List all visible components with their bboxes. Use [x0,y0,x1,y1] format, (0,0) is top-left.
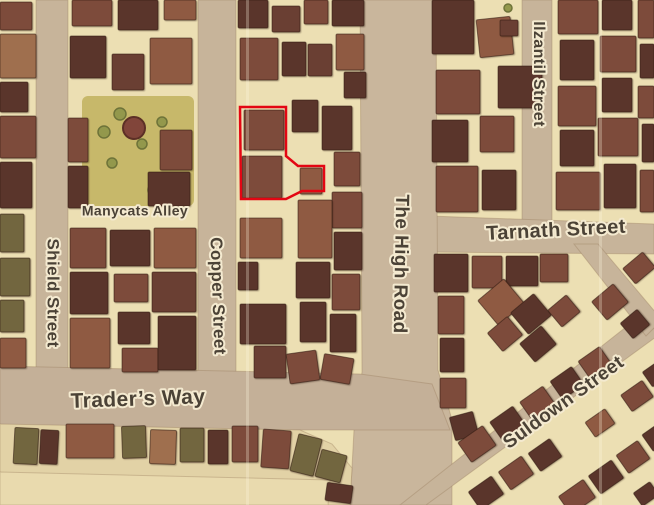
paper-crease [599,0,602,505]
building [320,354,354,385]
street-label-ilzantil-street: Ilzantil Street [530,21,547,127]
building [122,348,158,372]
building [436,70,480,114]
building [602,78,632,112]
building [70,36,106,78]
building [633,482,654,505]
building [68,118,88,162]
building [286,350,320,384]
building [0,2,32,30]
building [336,34,364,70]
street-label-shield-street: Shield Street [44,238,63,347]
building [254,346,286,378]
building [520,326,557,362]
building [334,152,360,186]
fantasy-city-map: Manycats AlleyShield StreetCopper Street… [0,0,654,505]
building [332,274,360,310]
building [0,338,26,368]
building [436,166,478,212]
building [472,256,502,288]
city-map-canvas: Manycats AlleyShield StreetCopper Street… [0,0,654,505]
building [244,110,284,150]
building [240,38,278,80]
market-stall [39,430,59,465]
building [558,479,595,505]
building [498,456,534,490]
park-bush [114,108,126,120]
street-label-traders-way: Trader’s Way [70,385,205,413]
building [344,72,366,98]
building [0,258,30,296]
building [292,100,318,132]
building [154,228,196,268]
building [330,314,356,352]
building [70,228,106,268]
building [72,0,112,26]
building [110,230,150,266]
building [70,272,108,314]
building [556,172,600,210]
building [0,214,24,252]
building [325,482,353,503]
park-bush [157,117,167,127]
building [322,106,352,150]
building [558,0,598,34]
park-bush [504,4,512,12]
building [438,296,464,334]
building [604,164,636,208]
market-stall [208,430,228,464]
building [272,6,300,32]
building [0,34,36,78]
building [558,86,596,126]
paper-crease [246,0,249,505]
building [642,124,654,162]
street-label-suldown-street: Suldown Street [499,352,628,454]
building [112,54,144,90]
building [150,38,192,84]
park-bush [137,139,147,149]
building [482,170,516,210]
building [642,425,654,452]
building [0,116,36,158]
building [480,116,514,152]
building [296,262,330,298]
street-copper-street [198,0,236,428]
building [560,130,594,166]
building [160,130,192,170]
building [148,172,190,206]
building [616,441,650,474]
building [602,0,632,30]
building [298,200,332,258]
street-label-manycats-alley: Manycats Alley [82,203,188,219]
building [638,0,654,38]
building [598,118,638,156]
building [332,192,362,228]
building [506,256,538,286]
building [0,300,24,332]
building [560,40,594,80]
building [0,82,28,112]
building [434,254,468,292]
market-stall [13,427,39,464]
building [440,338,464,372]
building [0,162,32,208]
building [600,36,636,72]
building [500,20,518,36]
building [114,274,148,302]
building [468,476,504,505]
park-bush [107,158,117,168]
building [640,44,654,78]
building [588,460,624,494]
market-stall [66,424,114,458]
building [621,380,654,411]
building [432,0,474,54]
building [68,166,88,208]
street-shield-street [36,0,68,428]
building [158,316,196,370]
building [640,170,654,212]
market-stall [261,429,292,469]
building [440,378,466,408]
market-stall [121,426,146,459]
building [432,120,468,162]
building [282,42,306,76]
building [548,295,581,327]
building [540,254,568,282]
building [164,0,196,20]
street-label-the-high-road: The High Road [389,194,412,334]
building [118,312,150,344]
market-stall [232,426,258,462]
building [238,0,268,28]
building [304,0,328,24]
market-stall [149,430,176,465]
market-stall [180,428,204,462]
building [118,0,158,30]
park-tree [123,117,145,139]
building [332,0,364,26]
building [70,318,110,368]
building [334,232,362,270]
building [300,302,326,342]
building [308,44,332,76]
building [528,439,562,472]
building [638,86,654,118]
building [152,272,196,312]
park-bush [98,126,110,138]
